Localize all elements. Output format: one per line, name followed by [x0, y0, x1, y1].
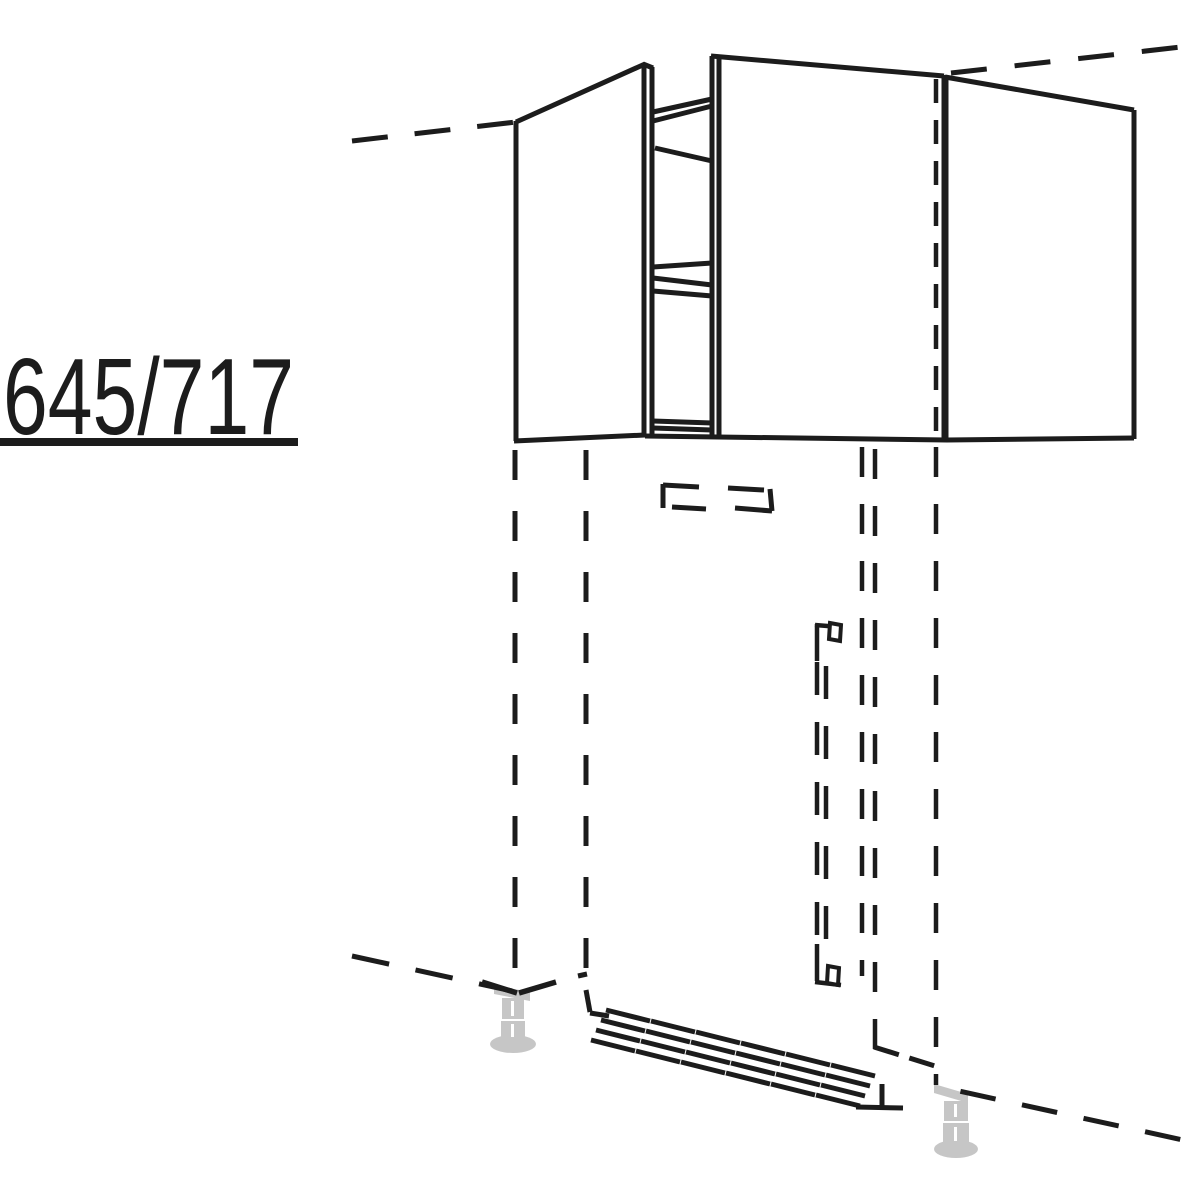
- center-door: [711, 56, 945, 440]
- tall-unit-projection-lines: [515, 447, 936, 1085]
- middle-shelf-edges: [653, 99, 712, 430]
- dimension-label: 645/717: [0, 336, 298, 458]
- handle-bottom-hook: [815, 944, 841, 985]
- wall-line-top-left: [352, 122, 516, 141]
- handle-top-hook: [815, 623, 841, 661]
- adjustable-feet: [490, 985, 978, 1158]
- connector-bracket-left: [663, 484, 706, 509]
- floor-line-left: [352, 956, 587, 993]
- foot-slit: [511, 1024, 514, 1037]
- left-door: [514, 64, 653, 441]
- connector-bracket-right: [728, 488, 772, 511]
- diagram-svg: 645/717: [0, 0, 1200, 1200]
- cabinet-bottom-edge: [645, 436, 1134, 440]
- wall-cabinet-solid-lines: [514, 56, 1134, 441]
- cabinet-technical-diagram: 645/717: [0, 0, 1200, 1200]
- foot-base: [934, 1140, 978, 1158]
- floor-line-right: [936, 1086, 1192, 1142]
- foot-slit: [954, 1104, 957, 1117]
- right-side-panel: [945, 77, 1134, 439]
- adjustable-foot-left: [490, 985, 536, 1053]
- wall-line-top-right: [951, 45, 1199, 73]
- foot-base: [490, 1035, 536, 1053]
- dimension-label-underline: [0, 438, 298, 446]
- plinth-vent-grille: [586, 990, 903, 1108]
- hidden-door-handle: [815, 623, 841, 985]
- foot-slit: [954, 1127, 957, 1141]
- foot-slit: [511, 1001, 514, 1016]
- dashed-lines: [352, 45, 1199, 1142]
